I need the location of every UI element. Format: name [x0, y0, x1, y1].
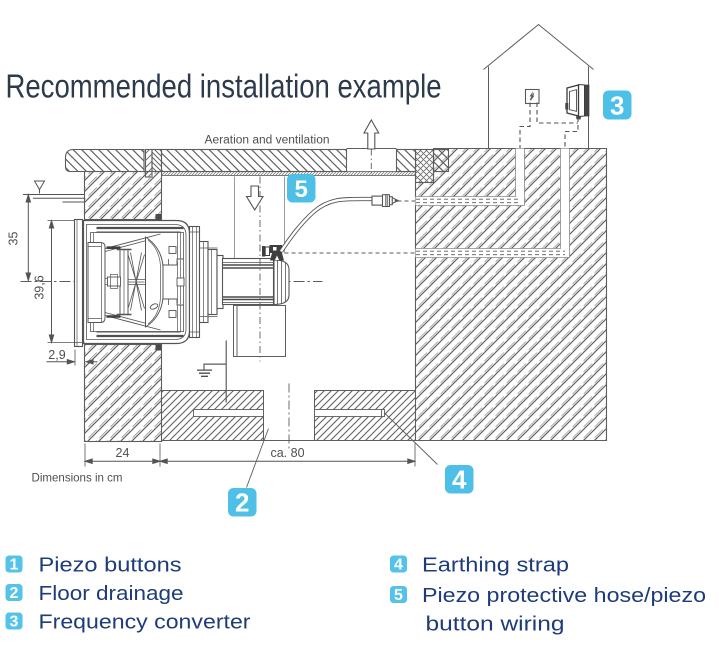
svg-text:Frequency converter: Frequency converter — [39, 612, 251, 634]
svg-text:Floor drainage: Floor drainage — [39, 583, 184, 605]
svg-text:24: 24 — [116, 446, 130, 460]
svg-text:2: 2 — [10, 585, 19, 602]
svg-text:Piezo buttons: Piezo buttons — [39, 555, 182, 577]
svg-text:2: 2 — [235, 488, 249, 518]
svg-text:5: 5 — [295, 176, 308, 203]
svg-text:3: 3 — [610, 91, 624, 121]
svg-text:4: 4 — [452, 465, 467, 495]
svg-text:5: 5 — [394, 587, 403, 604]
svg-text:Dimensions in cm: Dimensions in cm — [32, 471, 123, 485]
svg-text:Aeration and ventilation: Aeration and ventilation — [205, 135, 330, 147]
svg-text:35: 35 — [7, 232, 21, 246]
svg-text:Piezo protective hose/piezo: Piezo protective hose/piezo — [422, 585, 706, 607]
svg-text:button wiring: button wiring — [426, 614, 565, 636]
svg-text:ca. 80: ca. 80 — [270, 446, 304, 460]
svg-text:Earthing strap: Earthing strap — [422, 555, 569, 577]
svg-text:Recommended installation examp: Recommended installation example — [6, 68, 442, 105]
svg-text:4: 4 — [394, 557, 403, 574]
svg-text:3: 3 — [10, 614, 19, 631]
svg-text:1: 1 — [10, 557, 19, 574]
svg-text:39,6: 39,6 — [33, 275, 47, 299]
svg-text:2,9: 2,9 — [48, 348, 65, 362]
